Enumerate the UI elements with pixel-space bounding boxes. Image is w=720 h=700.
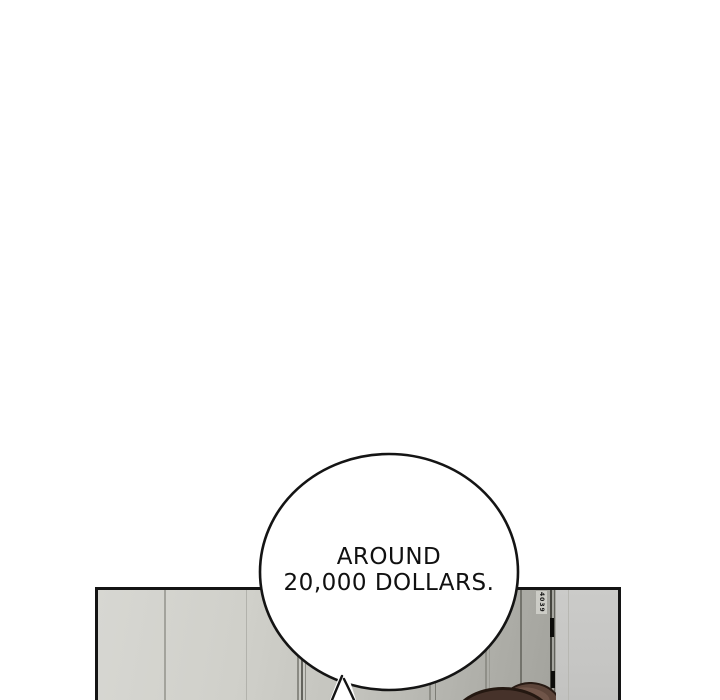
speech-line-1: AROUND [239,544,539,570]
speech-bubble-text: AROUND 20,000 DOLLARS. [239,544,539,596]
comic-page: 4039 AROUND 20,000 DOLLARS. [0,0,720,700]
speech-line-2: 20,000 DOLLARS. [239,570,539,596]
